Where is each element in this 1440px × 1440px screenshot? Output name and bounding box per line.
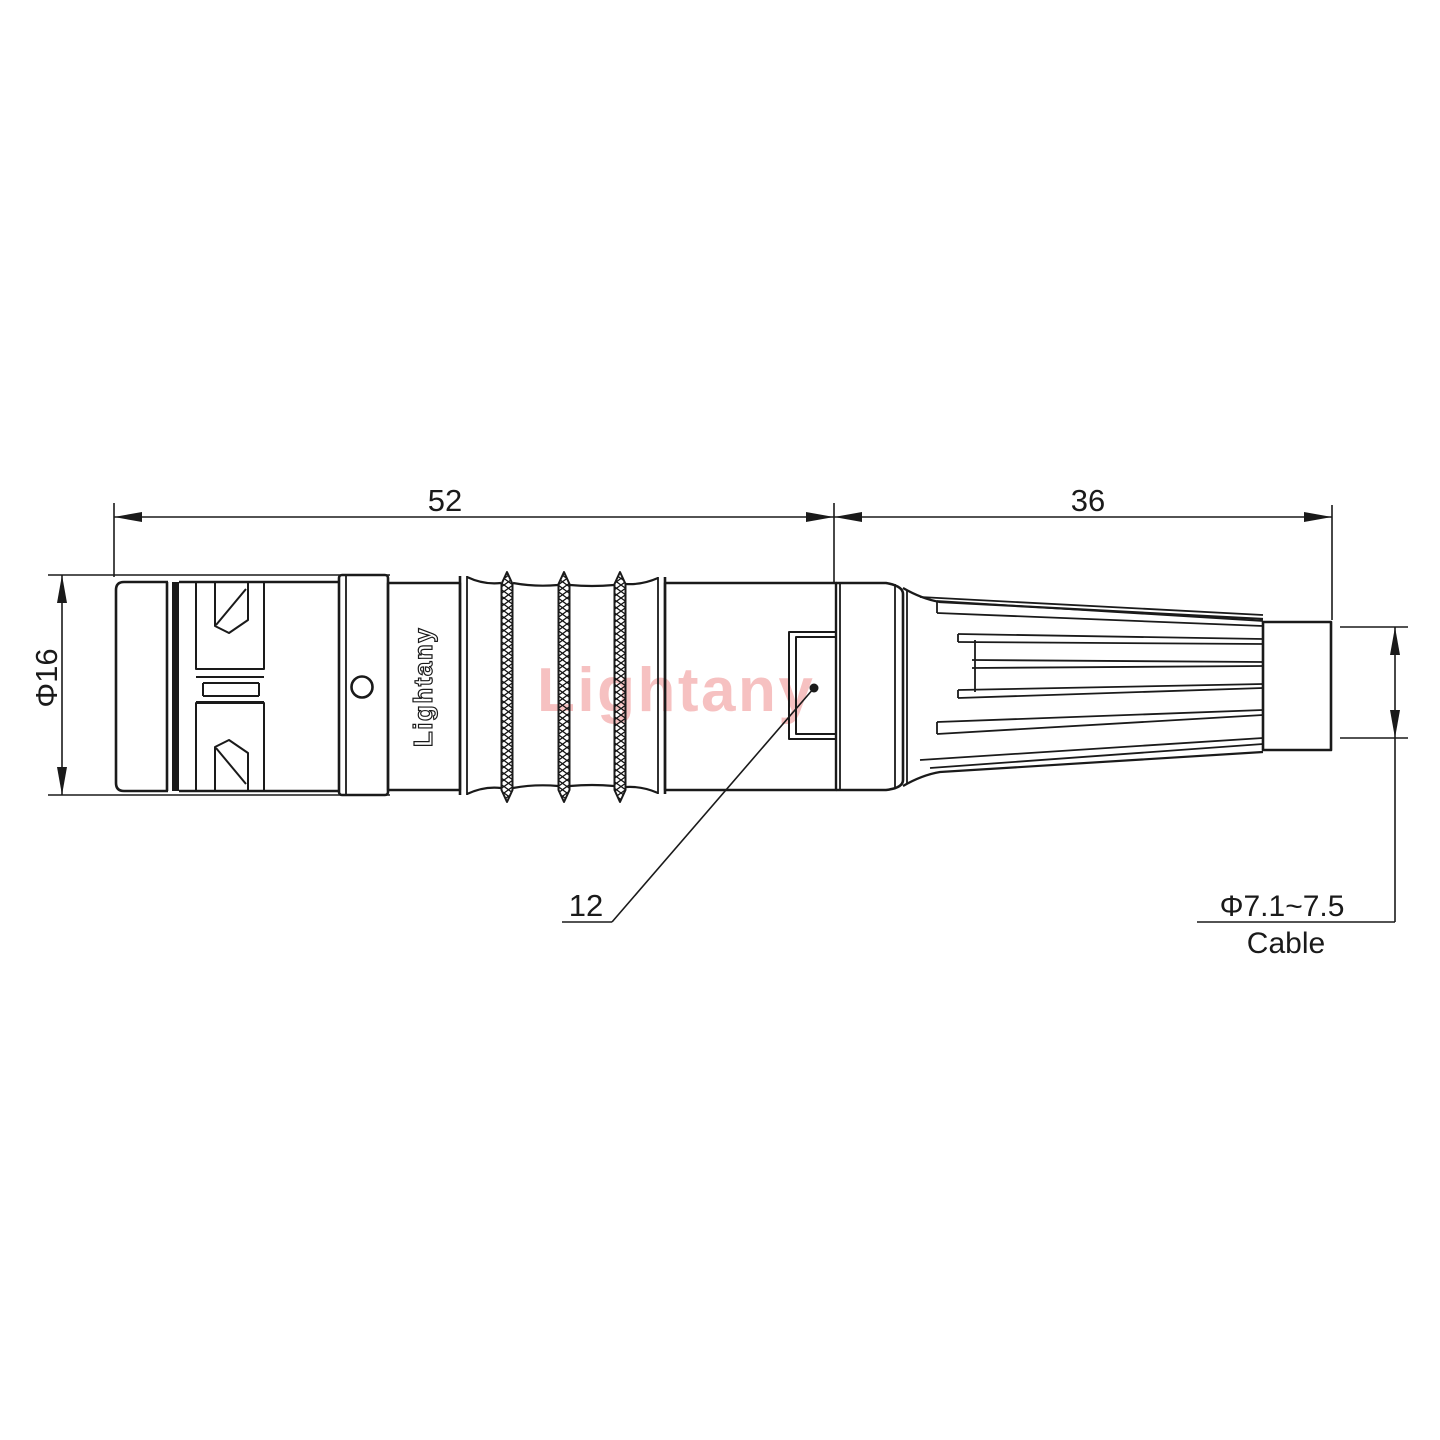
cable-caption: Cable [1247,927,1325,960]
technical-drawing: Lightany [0,0,1440,1440]
body-engraving-text: Lightany [408,627,438,747]
arrow-up-d16 [57,575,67,603]
arrow-down-d16 [57,767,67,795]
arrow-up-cable [1390,627,1400,655]
arrow-right-36 [1304,512,1332,522]
arrow-left-36 [834,512,862,522]
arrow-right-52 [806,512,834,522]
drawing-page: Lightany [0,0,1440,1440]
leader-dot [810,684,819,693]
cable-diameter-label: Φ7.1~7.5 [1220,890,1345,923]
arrow-down-cable [1390,710,1400,738]
watermark-text: Lightany [537,656,815,725]
dim-front-diameter-label: Φ16 [29,648,64,707]
leader-label: 12 [569,888,603,923]
dim-rear-length-label: 36 [1071,483,1105,518]
arrow-left-52 [114,512,142,522]
dim-front-length-label: 52 [428,483,462,518]
